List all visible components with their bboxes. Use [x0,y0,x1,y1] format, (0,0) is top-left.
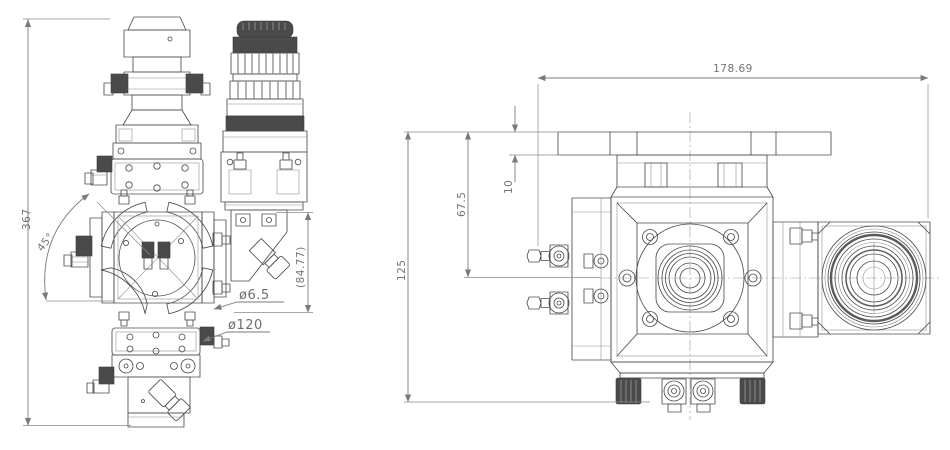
dim-45-label: 45° [35,231,57,254]
slot-bolts [119,190,195,326]
ref-height-text: (84.77) [295,246,307,288]
lower-block [87,327,229,393]
label-hole-dia: ø6.5 [214,288,284,309]
collimator-assembly [85,17,210,194]
front-view-drawing: 367 45° ø6.5 ø120 (84.77) [21,17,313,427]
dim-angle: 45° [35,194,150,301]
dim-flange-to-bottom: 125 [396,132,650,402]
hole-dia-text: ø6.5 [239,288,270,303]
top-view-drawing: 178.69 10 67.5 125 [396,63,942,420]
left-fitting-upper [527,245,569,267]
nozzle-section [128,377,190,427]
bottom-fittings [662,379,715,412]
adjust-knob-right [740,378,765,404]
dim-367-label: 367 [21,208,33,230]
overall-width-text: 178.69 [713,63,753,75]
laser-head-drawing: 367 45° ø6.5 ø120 (84.77) [0,0,950,450]
dim-flange-to-axis: 67.5 [404,132,600,278]
right-fitting-upper [790,228,818,244]
sensor-unit [221,21,307,281]
plate-bolts [584,254,608,303]
main-body [527,197,818,412]
adjust-knob-left [616,378,641,404]
sensor-connector-fitting [248,237,290,279]
bolt-circle-text: ø120 [228,318,263,333]
technical-drawing-page: 367 45° ø6.5 ø120 (84.77) [0,0,950,450]
flange-to-axis-text: 67.5 [456,192,468,217]
right-fitting-lower [790,313,818,329]
dim-overall-width: 178.69 [538,63,928,246]
flange-to-bottom-text: 125 [396,259,408,281]
flange-thickness-text: 10 [503,180,515,194]
mounting-flange [558,132,831,155]
mount-bracket [611,155,773,197]
dim-flange-thickness: 10 [503,106,560,194]
mirror-housing [64,190,230,326]
left-fitting-lower [527,292,569,314]
